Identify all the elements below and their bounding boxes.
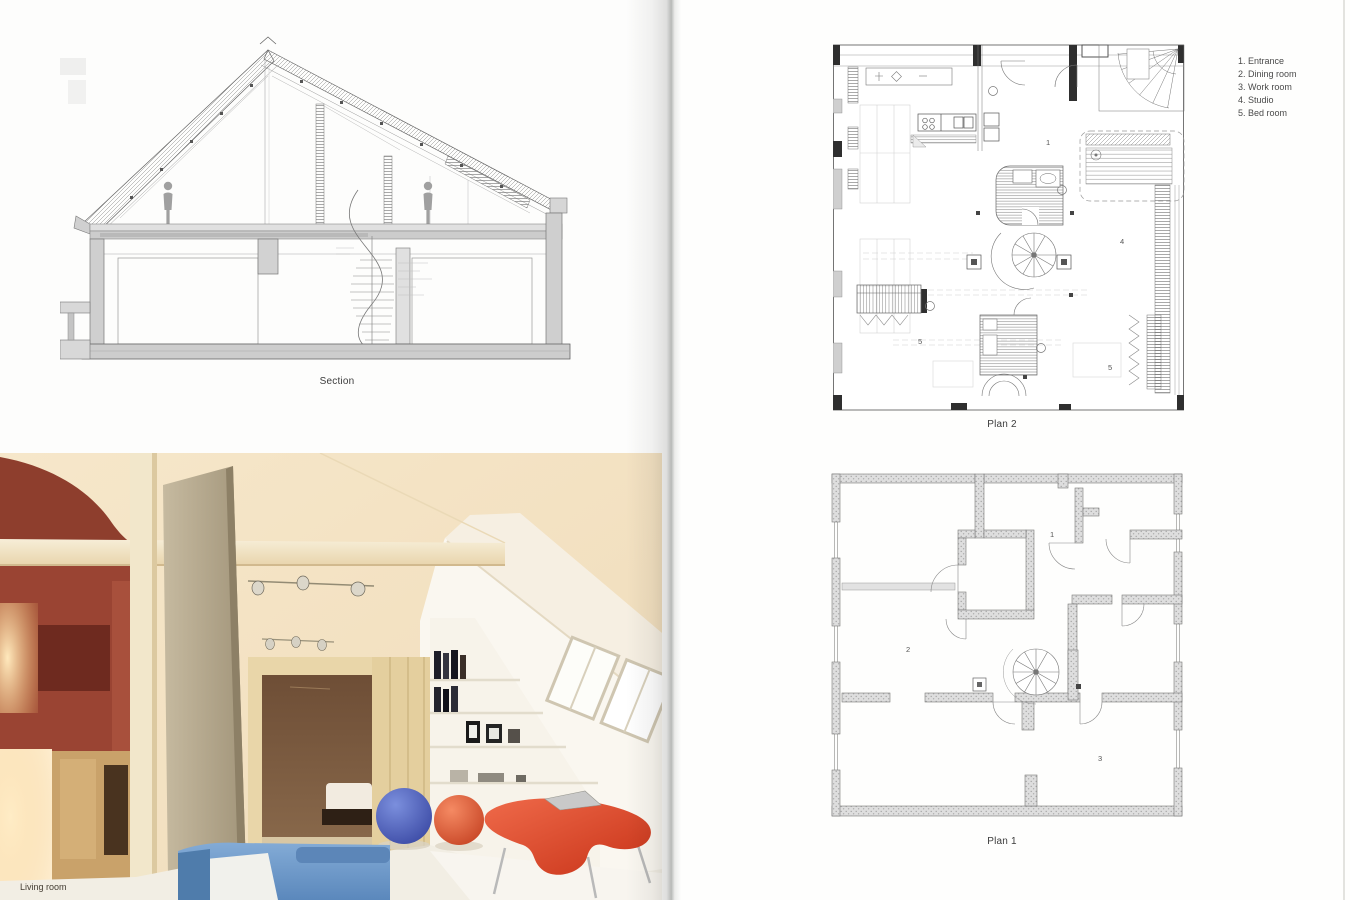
spotlight [318,640,327,651]
plan-upper-figure: 1 4 5 5 [833,43,1185,415]
section-drawing [60,8,620,400]
ground-slab [60,302,570,359]
attic-floor-slab [90,224,562,239]
lower-left-wall [0,749,136,885]
bathroom-core-upper [996,166,1063,225]
plan1-windows [835,514,1180,770]
room-label-dining: 2 [906,645,910,654]
plan-legend: 1. Entrance 2. Dining room 3. Work room … [1238,55,1297,120]
pouf-red [434,795,484,845]
spotlight [297,576,309,590]
room-label-bedroom-left: 5 [918,337,922,346]
dimension-ticks [336,248,432,295]
human-figure-right [424,182,433,225]
spotlight [351,582,365,596]
photo-caption: Living room [20,882,67,892]
bedroom-interior [262,675,372,855]
window-light-patch [0,603,38,713]
legend-item: 1. Entrance [1238,55,1297,68]
plan-upper-drawing: 1 4 5 5 [833,43,1185,415]
legend-item: 2. Dining room [1238,68,1297,81]
plan-lower-caption: Plan 1 [947,836,1057,847]
section-figure: Section [60,8,620,400]
wall-recess [38,625,110,691]
plan1-interior-walls [842,474,1182,806]
spotlight [252,581,264,595]
spotlight [266,639,275,650]
room-label-studio: 4 [1120,237,1124,246]
plan-lower-drawing: 1 2 3 [830,470,1185,820]
vertical-post [130,453,157,885]
legend-item: 3. Work room [1238,81,1297,94]
spotlight [292,637,301,648]
page-edge [1343,0,1345,900]
legend-item: 5. Bed room [1238,107,1297,120]
plan-upper-caption: Plan 2 [947,419,1057,430]
book-spread: Section [0,0,1350,900]
pouf-blue [376,788,432,844]
section-caption: Section [282,376,392,387]
human-figure-left [164,182,173,225]
living-room-photo-art [0,453,662,900]
legend-item: 4. Studio [1238,94,1297,107]
bedroom-doorway [248,657,388,857]
low-partition [842,583,955,590]
concrete-pillar [163,466,246,878]
plan-lower-figure: 1 2 3 [830,470,1185,820]
room-label-entrance: 1 [1046,138,1050,147]
left-page: Section [0,0,672,900]
scan-artifacts [60,58,86,104]
ceiling-beam [0,539,505,566]
room-label-bedroom-right: 5 [1108,363,1112,372]
room-label-work: 3 [1098,754,1102,763]
living-room-photo: Living room [0,453,662,900]
plan1-outer-walls [832,474,1182,816]
blue-sofa [178,843,390,900]
room-label-entrance: 1 [1050,530,1054,539]
